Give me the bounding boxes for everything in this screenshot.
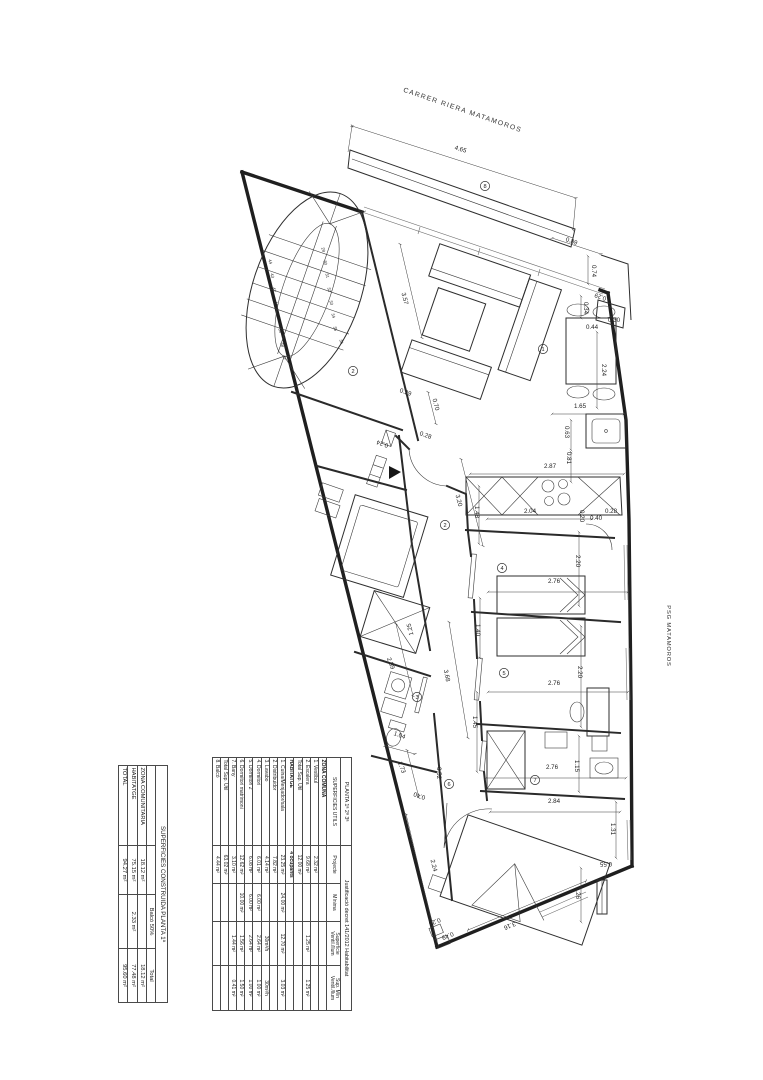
- value-sup-ventil: 30m³/h: [261, 922, 269, 966]
- dimension-label: 1.45: [471, 716, 478, 729]
- value-sup-ventil: [212, 922, 220, 966]
- value-projecte: 6.01 m²: [253, 846, 261, 884]
- row-label: 8. Balcó: [212, 758, 220, 846]
- table-title-row: SUPERFICIES CONSTRUIDA PLANTA 1ª: [155, 766, 167, 1003]
- dimension-label: 0.44: [586, 324, 599, 331]
- row-label: 2. Escalera: [302, 758, 310, 846]
- col-header: Mínima: [327, 884, 341, 922]
- table-row: HABITATGE75.15 m²2.33 m²77.48 m²: [128, 766, 137, 1003]
- facade-window: [362, 207, 605, 294]
- value-projecte: 23.25 m²: [278, 846, 286, 884]
- value-total: 77.48 m²: [128, 949, 137, 1003]
- value-minima: 24.00 m²: [278, 884, 286, 922]
- dimension-label: 1.15: [573, 760, 580, 773]
- dimension-label: 1.65: [574, 403, 587, 410]
- value-sup-min-ventil: [269, 966, 277, 1011]
- room-number: 1: [541, 347, 544, 353]
- dimension-label: 3.68: [442, 669, 451, 683]
- value-sup-ventil: 2.64 m²: [253, 922, 261, 966]
- value-minima: [269, 884, 277, 922]
- table-superficies-utils: PLANTA 1ª 2ª 3ª Justificació decret 141/…: [212, 757, 352, 1010]
- bedside-table: [428, 875, 446, 893]
- entry-fittings: [367, 430, 396, 487]
- row-label: ZONA COMUNA: [318, 758, 326, 846]
- row-label: 5. Dormitori 2: [245, 758, 253, 846]
- value-sup-ventil: [286, 922, 294, 966]
- room-number: 2: [351, 369, 354, 375]
- dimension-label: 2.24: [600, 364, 607, 377]
- shaft: [360, 591, 429, 654]
- dimension-label: 1.48: [473, 506, 480, 519]
- washbasin: [545, 732, 567, 748]
- table-row: 6. Dormitori matrimoni12.62 m²10.00 m²1.…: [237, 758, 245, 1011]
- justificacio-title: Justificació decret 141/2012 Habitabilit…: [340, 846, 351, 1011]
- dimension-label: 0.40: [590, 515, 603, 522]
- hob-burner: [559, 480, 568, 489]
- row-label: ZONA COMUNITARIA: [137, 766, 146, 846]
- value-sup-ventil: 12.70 m²: [278, 922, 286, 966]
- room-number: 2: [443, 523, 446, 529]
- bed-dormitori-2: [497, 618, 585, 656]
- col-header: Balcó 50%: [146, 895, 155, 949]
- stair-step-number: 29: [320, 247, 326, 253]
- dimension-label: 2.59: [385, 657, 396, 671]
- table-row: 1. Vestíbul2.32 m²: [310, 758, 318, 1011]
- door-leaf: [474, 658, 482, 700]
- dimension-label: 0.28: [419, 430, 433, 441]
- value-projecte: [318, 846, 326, 884]
- table-superficies-construida: SUPERFICIES CONSTRUIDA PLANTA 1ª Balcó 5…: [118, 765, 168, 1002]
- value-sup-min-ventil: 3.03 m²: [278, 966, 286, 1011]
- row-label: 3. Lavabo: [261, 758, 269, 846]
- dimension-label: 0.74: [590, 265, 597, 278]
- dimension-label: 1.73: [396, 761, 407, 775]
- dimension-label: 2.04: [524, 508, 537, 515]
- col-header: Superficie Ventil./llum: [327, 922, 341, 966]
- value-minima: [212, 884, 220, 922]
- value-sup-ventil: [269, 922, 277, 966]
- value-minima: [302, 884, 310, 922]
- balcony: [348, 150, 575, 247]
- room-number: 3: [415, 695, 418, 701]
- table-row: HABITATGE4 ocupants: [286, 758, 294, 1011]
- value-sup-ventil: [310, 922, 318, 966]
- col-header: SUPERFICIES UTILS: [327, 758, 341, 846]
- value-projecte: 4.44 m²: [212, 846, 220, 884]
- value-minima: 6.00 m²: [253, 884, 261, 922]
- street-label: PSG MATAMOROS: [665, 605, 671, 666]
- value-total: 95.60 m²: [119, 949, 128, 1003]
- value-minima: [318, 884, 326, 922]
- table-header-row: SUPERFICIES UTILS Projecte Mínima Superf…: [327, 758, 341, 1011]
- table-row: ZONA COMUNITARIA18.12 m²18.12 m²: [137, 766, 146, 1003]
- table-row: Total Sup. Util12.00 m²: [294, 758, 302, 1011]
- hob-burner: [545, 497, 554, 506]
- row-label: Total Sup. Util: [294, 758, 302, 846]
- row-label: HABITATGE: [286, 758, 294, 846]
- table-row: 5. Dormitori 26.08 m²6.00 m²2.64 m²1.00 …: [245, 758, 253, 1011]
- value-sup-ventil: 1.25 m²: [302, 922, 310, 966]
- dimension-label: 0.24: [375, 438, 389, 449]
- value-projecte: 12.62 m²: [237, 846, 245, 884]
- row-label: 2. Distribuidor: [269, 758, 277, 846]
- value-projecte: 2.32 m²: [310, 846, 318, 884]
- table-row: TOTAL94.27 m²95.60 m²: [119, 766, 128, 1003]
- chair: [570, 702, 584, 722]
- table-row: 8. Balcó4.44 m²: [212, 758, 220, 1011]
- row-label: HABITATGE: [128, 766, 137, 846]
- drawing-sheet: CARRER RIERA MATAMOROSPSG MATAMOROS4.650…: [0, 0, 763, 1080]
- value-sup-ventil: [294, 922, 302, 966]
- room-number: 5: [502, 671, 505, 677]
- table-header-row: Balcó 50% Total: [146, 766, 155, 1003]
- value-minima: [310, 884, 318, 922]
- dimension-label: 2.76: [548, 578, 561, 585]
- toilet: [590, 758, 618, 778]
- value-projecte: 6.08 m²: [245, 846, 253, 884]
- row-label: Total Sup. Util: [220, 758, 228, 846]
- dimension-label: 2.76: [548, 680, 561, 687]
- stair-step-number: 44: [267, 259, 273, 265]
- washing-machine: [384, 672, 411, 699]
- value-sup-ventil: [220, 922, 228, 966]
- value-minima: [294, 884, 302, 922]
- value-sup-min-ventil: 0.41 m²: [228, 966, 236, 1011]
- dimension-label: 3.57: [400, 292, 410, 306]
- value-sup-ventil: 2.64 m²: [245, 922, 253, 966]
- row-label: 6. Dormitori matrimoni: [237, 758, 245, 846]
- value-sup-min-ventil: 1.25 m²: [302, 966, 310, 1011]
- hob-burner: [558, 493, 570, 505]
- planta-title: PLANTA 1ª 2ª 3ª: [340, 758, 351, 846]
- dimension-lines: [348, 126, 628, 940]
- value-sup-min-ventil: [212, 966, 220, 1011]
- dimension-label: 0.28: [605, 508, 618, 515]
- value-sup-min-ventil: [286, 966, 294, 1011]
- dimension-label: 3.20: [454, 494, 464, 508]
- value-projecte: 4.14 m²: [261, 846, 269, 884]
- value-minima: 10.00 m²: [237, 884, 245, 922]
- value-projecte: 9.68 m²: [302, 846, 310, 884]
- table-row: 3. Lavabo4.14 m²30m³/h30m³/h: [261, 758, 269, 1011]
- table-title-row: PLANTA 1ª 2ª 3ª Justificació decret 141/…: [340, 758, 351, 1011]
- col-header: Projecte: [327, 846, 341, 884]
- dimension-label: 0.63: [563, 426, 570, 439]
- row-label: 1. Vestíbul: [310, 758, 318, 846]
- dimension-label: 1.40: [474, 624, 481, 637]
- cistern: [592, 736, 607, 751]
- stair-step-number: 33: [328, 300, 334, 306]
- door-leaf: [480, 741, 487, 771]
- stair-step-number: 35: [332, 326, 338, 332]
- desk: [570, 688, 609, 736]
- construida-title: SUPERFICIES CONSTRUIDA PLANTA 1ª: [155, 766, 167, 1003]
- dimension-label: 0.30: [608, 317, 621, 324]
- value-superficie: 94.27 m²: [119, 846, 128, 895]
- washbasin: [381, 697, 406, 718]
- value-sup-min-ventil: 30m³/h: [261, 966, 269, 1011]
- value-sup-min-ventil: 1.00 m²: [245, 966, 253, 1011]
- room-number: 4: [500, 566, 503, 572]
- dimension-label: 4.65: [454, 144, 468, 154]
- dimension-label: 1.25: [406, 622, 416, 636]
- value-minima: [220, 884, 228, 922]
- value-projecte: 63.02 m²: [220, 846, 228, 884]
- value-minima: [286, 884, 294, 922]
- room-number: 6: [447, 782, 450, 788]
- value-minima: [228, 884, 236, 922]
- dimension-label: 2.87: [544, 463, 557, 470]
- table-row: 2. Escalera9.68 m²1.25 m²1.25 m²: [302, 758, 310, 1011]
- col-header: Total: [146, 949, 155, 1003]
- hob-burner: [542, 480, 554, 492]
- value-projecte: 12.00 m²: [294, 846, 302, 884]
- dimension-label: 0.55: [599, 860, 612, 867]
- value-sup-min-ventil: [318, 966, 326, 1011]
- row-label: 7. Bany: [228, 758, 236, 846]
- table-row: 7. Bany3.10 m²1.44 m²0.41 m²: [228, 758, 236, 1011]
- dimension-label: 0.20: [578, 510, 585, 523]
- col-header: Sup. Mín Ventil./llum: [327, 966, 341, 1011]
- value-sup-min-ventil: 1.50 m²: [237, 966, 245, 1011]
- dimension-label: 2.20: [576, 666, 583, 679]
- dimension-label: 3.16: [502, 920, 516, 931]
- dimension-label: 2.20: [574, 555, 581, 568]
- row-label: 4. Dormitori: [253, 758, 261, 846]
- value-sup-min-ventil: [294, 966, 302, 1011]
- dimension-label: 2.24: [429, 859, 439, 873]
- street-label: CARRER RIERA MATAMOROS: [402, 87, 522, 134]
- value-superficie: 75.15 m²: [128, 846, 137, 895]
- door-leaf: [468, 554, 476, 598]
- row-label: 1. Cuina/Menjador/sala: [278, 758, 286, 846]
- room-number: 8: [483, 184, 486, 190]
- value-sup-min-ventil: [310, 966, 318, 1011]
- table-row: 2. Distribuidor7.82 m²: [269, 758, 277, 1011]
- value-projecte: 7.82 m²: [269, 846, 277, 884]
- entrance-arrow: [389, 466, 401, 479]
- col-header: [146, 766, 155, 846]
- table-row: 1. Cuina/Menjador/sala23.25 m²24.00 m²12…: [278, 758, 286, 1011]
- entrance-door-arc: [409, 449, 447, 486]
- dimension-label: 0.81: [565, 452, 572, 465]
- value-balco-50: [119, 895, 128, 949]
- value-superficie: 18.12 m²: [137, 846, 146, 895]
- value-sup-ventil: 1.56 m²: [237, 922, 245, 966]
- bedroom-door-arc: [444, 803, 492, 848]
- value-sup-ventil: [318, 922, 326, 966]
- staircase: [223, 176, 392, 404]
- value-minima: 6.00 m²: [245, 884, 253, 922]
- table-row: Total Sup. Util63.02 m²: [220, 758, 228, 1011]
- value-balco-50: [137, 895, 146, 949]
- stair-landing-wall: [292, 392, 402, 430]
- dimension-label: 2.84: [548, 798, 561, 805]
- value-sup-min-ventil: [220, 966, 228, 1011]
- sofa-set: [396, 244, 563, 413]
- table-row: 4. Dormitori6.01 m²6.00 m²2.64 m²1.00 m²: [253, 758, 261, 1011]
- floor-plan: CARRER RIERA MATAMOROSPSG MATAMOROS4.650…: [0, 0, 763, 1080]
- dimension-label: 0.52: [435, 767, 442, 780]
- value-sup-min-ventil: 1.00 m²: [253, 966, 261, 1011]
- dimension-label: 1.04: [393, 730, 407, 741]
- dimension-label: 2.76: [546, 764, 559, 771]
- value-balco-50: 2.33 m²: [128, 895, 137, 949]
- dimension-label: 0.40: [412, 790, 426, 801]
- stair-step-number: 34: [330, 313, 336, 319]
- row-label: TOTAL: [119, 766, 128, 846]
- value-projecte: 4 ocupants: [286, 846, 294, 884]
- dimension-label: 0.34: [582, 302, 589, 315]
- dimension-label: 1.26: [574, 887, 581, 900]
- bed-dormitori-1: [497, 576, 585, 614]
- stair-step-number: 30: [322, 260, 328, 266]
- value-total: 18.12 m²: [137, 949, 146, 1003]
- dimension-label: 0.29: [399, 387, 413, 398]
- stair-step-number: 31: [324, 273, 330, 279]
- dimension-label: 0.70: [431, 398, 441, 412]
- value-projecte: 3.10 m²: [228, 846, 236, 884]
- value-minima: [261, 884, 269, 922]
- chair: [593, 388, 615, 400]
- coffee-table: [422, 288, 486, 352]
- room-number: 7: [533, 778, 536, 784]
- master-bed: [427, 810, 610, 945]
- value-sup-ventil: 1.44 m²: [228, 922, 236, 966]
- table-row: ZONA COMUNA: [318, 758, 326, 1011]
- dimension-label: 1.31: [609, 823, 616, 836]
- col-header: [146, 846, 155, 895]
- bathroom-fixtures: [487, 731, 618, 789]
- kitchen: [466, 414, 626, 550]
- chair: [567, 386, 589, 398]
